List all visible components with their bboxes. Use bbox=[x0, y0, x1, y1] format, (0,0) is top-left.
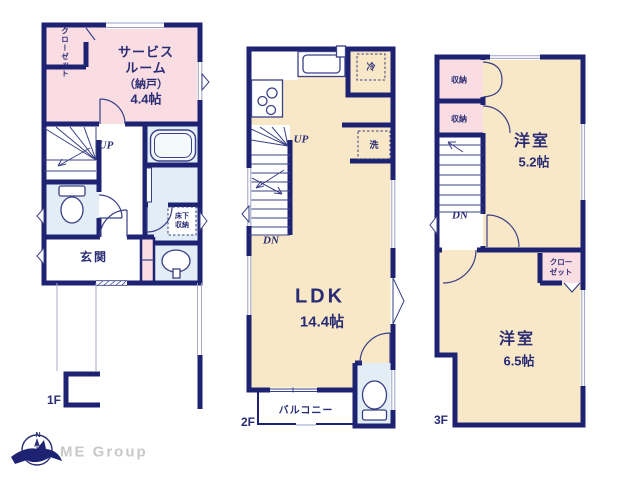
ldk-size-label: 14.4帖 bbox=[300, 313, 344, 330]
fridge-label: 冷 bbox=[366, 62, 375, 72]
stairs-area-3f bbox=[437, 135, 483, 250]
storage-top-label: 収納 bbox=[451, 75, 467, 84]
service-room-label-2: ルーム bbox=[125, 62, 167, 77]
service-room-size: 4.4帖 bbox=[130, 93, 161, 108]
company-name: ME Group bbox=[60, 444, 148, 461]
toilet-icon-1f bbox=[59, 186, 85, 223]
stove-icon bbox=[252, 80, 283, 117]
stairs-up-label-2f: UP bbox=[294, 134, 309, 147]
service-room-label-3: （納戸） bbox=[124, 79, 168, 92]
ldk-label: LDK bbox=[295, 286, 345, 309]
kitchen-floor bbox=[251, 51, 298, 80]
floor-label-3f: 3F bbox=[434, 414, 448, 428]
floor-label-1f: 1F bbox=[47, 394, 61, 408]
storage-bottom-label: 収納 bbox=[451, 114, 467, 123]
compass-n-label: N bbox=[35, 432, 40, 440]
bathtub-icon bbox=[151, 130, 196, 161]
approach-lines bbox=[57, 283, 202, 409]
floor-plan-page: クローゼット サービス ルーム （納戸） 4.4帖 UP 床下 収納 玄関 1F… bbox=[0, 0, 640, 480]
stairs-down-label-3f: DN bbox=[452, 210, 468, 223]
room-b-size-label: 6.5帖 bbox=[503, 355, 534, 370]
stairs-down-label-2f: DN bbox=[263, 235, 279, 248]
closet-label-3f-1: クロー bbox=[550, 259, 573, 268]
toilet-icon-2f bbox=[363, 381, 387, 420]
washer-label: 洗 bbox=[369, 140, 378, 150]
room-a-size-label: 5.2帖 bbox=[518, 156, 549, 171]
closet-label-3f-2: ゼット bbox=[550, 269, 573, 278]
underfloor-storage-label-2: 収納 bbox=[175, 222, 189, 230]
balcony-label: バルコニー bbox=[279, 405, 334, 417]
stairs-up-label-1f: UP bbox=[99, 140, 114, 153]
entrance-label: 玄関 bbox=[80, 251, 108, 265]
room-a-label: 洋室 bbox=[514, 133, 550, 151]
closet-label-1f: クローゼット bbox=[61, 27, 70, 65]
sliding-door-icon bbox=[147, 168, 152, 202]
room-b-label: 洋室 bbox=[499, 331, 535, 349]
floor-label-2f: 2F bbox=[241, 416, 255, 430]
underfloor-storage-label-1: 床下 bbox=[175, 213, 189, 221]
service-room-label-1: サービス bbox=[118, 46, 174, 61]
